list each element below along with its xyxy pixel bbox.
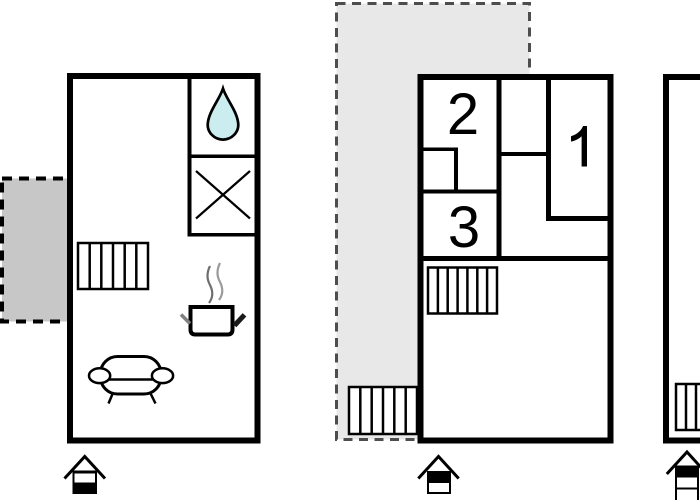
svg-text:3: 3 [448, 195, 480, 260]
svg-text:2: 2 [447, 82, 479, 147]
